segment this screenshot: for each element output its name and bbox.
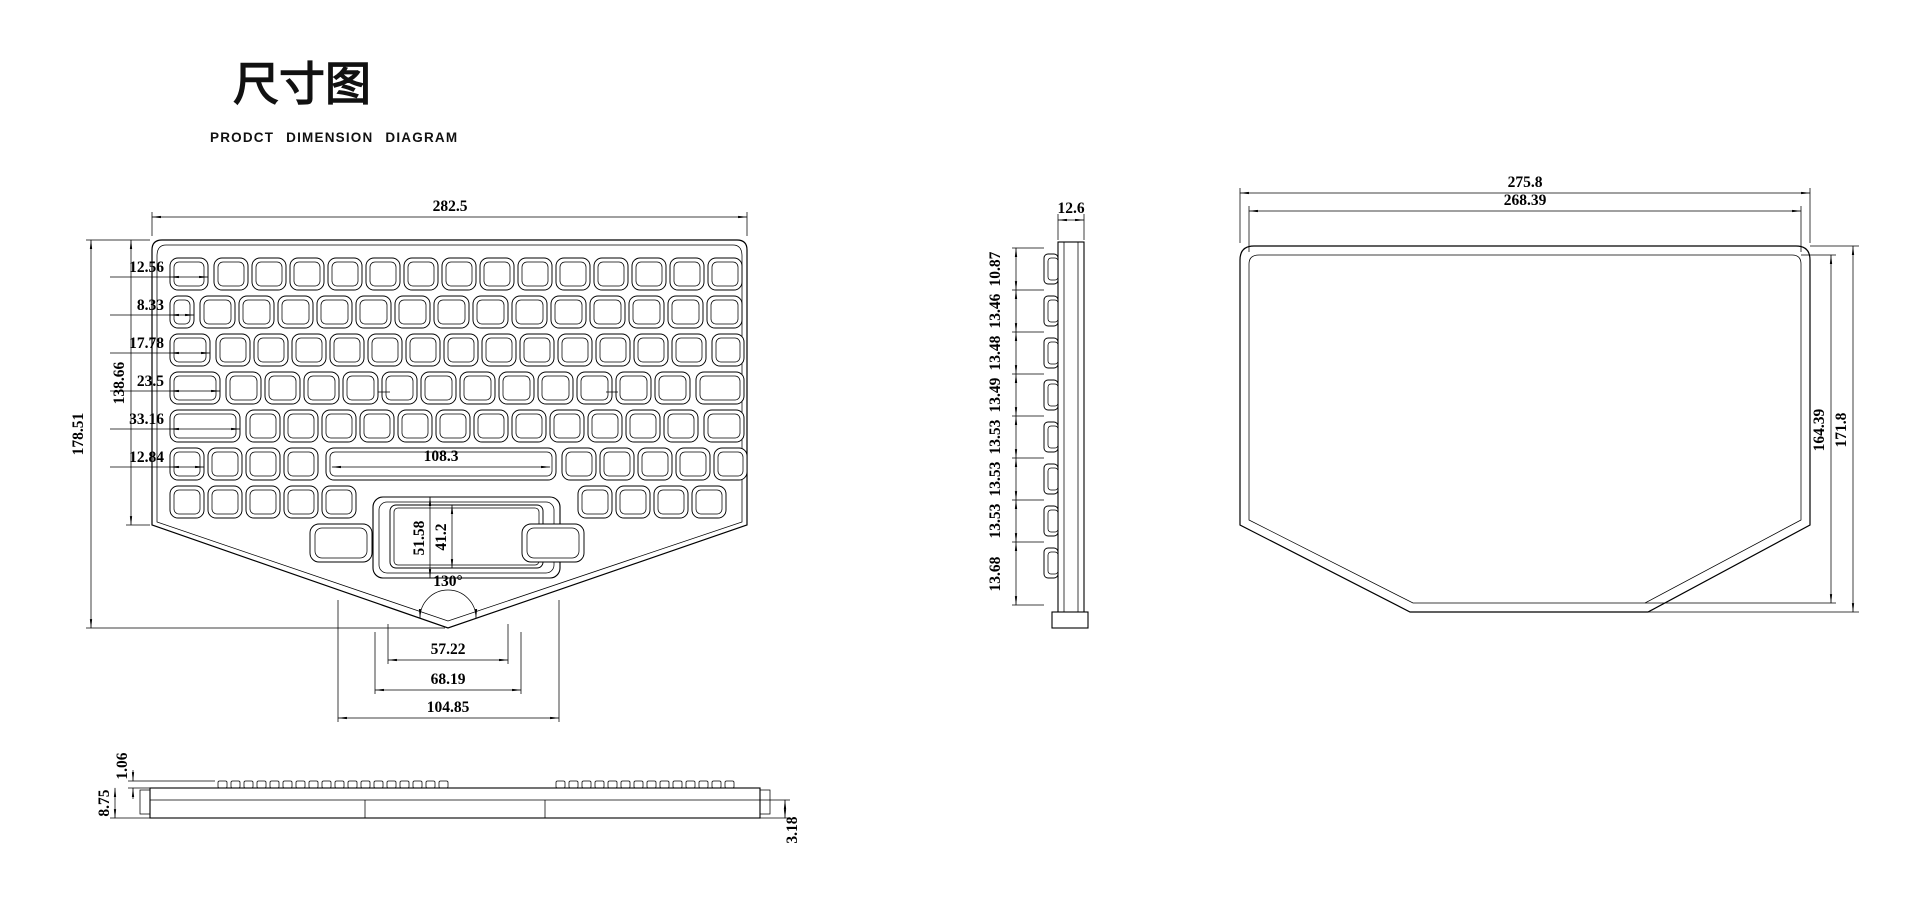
bottom-keycap-bump <box>374 781 383 788</box>
keycap <box>404 258 438 290</box>
keycap <box>550 410 584 442</box>
dim-label: 12.56 <box>129 259 164 276</box>
dim-label: 33.16 <box>129 411 164 428</box>
keycap <box>474 410 508 442</box>
keycap <box>226 372 261 404</box>
bottom-left-tab <box>140 790 150 814</box>
keycap <box>398 410 432 442</box>
dim-label: 13.53 <box>987 419 1004 454</box>
dim-back-inner-height: 164.39 <box>1645 255 1836 603</box>
keycap <box>322 486 356 518</box>
keycap <box>518 258 552 290</box>
dim-label: 41.2 <box>433 523 450 550</box>
bottom-keycap-bump <box>595 781 604 788</box>
key-grid <box>170 258 747 518</box>
keycap <box>551 296 586 328</box>
keycap <box>600 448 634 480</box>
keycap <box>208 448 242 480</box>
keycap <box>246 448 280 480</box>
keycap <box>368 334 402 366</box>
mouse-button-right <box>522 524 584 562</box>
keycap <box>676 448 710 480</box>
bottom-keycap-bump <box>660 781 669 788</box>
keycap <box>668 296 703 328</box>
keycap <box>395 296 430 328</box>
page-subtitle: PRODCT DIMENSION DIAGRAM <box>210 130 458 145</box>
keycap <box>330 334 364 366</box>
bottom-keycap-bump <box>439 781 448 788</box>
keycap <box>707 296 742 328</box>
dim-label: 268.39 <box>1504 192 1547 209</box>
keycap <box>360 410 394 442</box>
dim-base-thickness: 3.18 <box>760 800 801 844</box>
keycap <box>442 258 476 290</box>
keycap <box>265 372 300 404</box>
bottom-keycap-bump <box>569 781 578 788</box>
keycap <box>538 372 573 404</box>
keycap <box>406 334 440 366</box>
keycap <box>696 372 744 404</box>
dim-label: 51.58 <box>411 520 428 555</box>
keycap <box>343 372 378 404</box>
dim-side-thickness: 12.6 <box>1057 200 1084 240</box>
bottom-view: 1.06 8.75 3.18 <box>96 752 801 843</box>
bottom-keycap-bump <box>413 781 422 788</box>
front-view: 282.5 178.51 138.66 12.56 8.33 1 <box>70 198 747 722</box>
dim-label: 3.18 <box>784 816 801 843</box>
side-key-bump <box>1044 506 1058 536</box>
bottom-keycap-bump <box>296 781 305 788</box>
keycap <box>577 372 612 404</box>
mouse-button-left <box>310 524 372 562</box>
dim-label: 275.8 <box>1508 174 1543 191</box>
dim-label: 23.5 <box>137 373 164 390</box>
bottom-keycap-bump <box>426 781 435 788</box>
keycap <box>290 258 324 290</box>
keycap <box>208 486 242 518</box>
bottom-keycap-bump <box>257 781 266 788</box>
dim-overall-width: 282.5 <box>152 198 747 236</box>
keycap <box>356 296 391 328</box>
keycap <box>473 296 508 328</box>
keycap <box>520 334 554 366</box>
keycap <box>252 258 286 290</box>
keycap <box>284 410 318 442</box>
keycap <box>317 296 352 328</box>
keycap <box>278 296 313 328</box>
bottom-keycap-bump <box>673 781 682 788</box>
keycap <box>328 258 362 290</box>
back-outline-inner <box>1249 255 1801 603</box>
page-title: 尺寸图 <box>233 57 371 111</box>
dim-label: 12.6 <box>1057 200 1084 217</box>
bottom-keycap-bump <box>608 781 617 788</box>
keycap <box>616 486 650 518</box>
dim-label: 104.85 <box>427 699 470 716</box>
keycap <box>304 372 339 404</box>
keycap <box>596 334 630 366</box>
keycap <box>170 296 194 328</box>
keycap <box>562 448 596 480</box>
dim-label: 68.19 <box>431 671 466 688</box>
bottom-keycap-bump <box>647 781 656 788</box>
dim-label: 108.3 <box>424 448 459 465</box>
keycap <box>512 296 547 328</box>
keycap <box>632 258 666 290</box>
dim-label: 13.68 <box>987 556 1004 591</box>
dim-label: 1.06 <box>114 752 131 779</box>
keycap <box>629 296 664 328</box>
keycap <box>284 486 318 518</box>
keycap <box>170 410 240 442</box>
bottom-keycap-bump <box>231 781 240 788</box>
dim-side-row-pitches: 10.87 13.46 13.48 13.49 13.53 13.53 13.5… <box>987 248 1044 605</box>
side-key-bump <box>1044 296 1058 326</box>
back-view: 275.8 268.39 164.39 171.8 <box>1240 174 1859 612</box>
bottom-keycap-bump <box>621 781 630 788</box>
bottom-keycap-texture <box>218 781 734 788</box>
keycap <box>254 334 288 366</box>
dim-label: 130° <box>433 573 462 590</box>
keycap <box>654 486 688 518</box>
dim-notch-angle: 130° <box>420 573 476 618</box>
side-key-bump <box>1044 338 1058 368</box>
dim-label: 282.5 <box>433 198 468 215</box>
bottom-keycap-bump <box>686 781 695 788</box>
keycap <box>200 296 235 328</box>
bottom-keycap-bump <box>582 781 591 788</box>
keycap <box>708 258 742 290</box>
keycap <box>170 486 204 518</box>
bottom-right-tab <box>760 790 770 814</box>
bottom-keycap-bump <box>335 781 344 788</box>
dim-back-inner-width: 268.39 <box>1249 192 1801 252</box>
keycap <box>590 296 625 328</box>
side-key-bump <box>1044 422 1058 452</box>
bottom-keycap-bump <box>699 781 708 788</box>
dim-notch-width-inner: 57.22 <box>388 624 508 664</box>
dimension-diagram-page: 尺寸图 PRODCT DIMENSION DIAGRAM 282.5 <box>0 0 1920 899</box>
dim-label: 8.33 <box>137 297 164 314</box>
back-outline <box>1240 246 1810 612</box>
keycap <box>588 410 622 442</box>
bottom-keycap-bump <box>361 781 370 788</box>
keycap <box>284 448 318 480</box>
drawing-canvas: 尺寸图 PRODCT DIMENSION DIAGRAM 282.5 <box>0 0 1920 899</box>
keycap <box>460 372 495 404</box>
side-key-bump <box>1044 254 1058 284</box>
keycap <box>434 296 469 328</box>
dim-label: 12.84 <box>129 449 164 466</box>
keycap <box>558 334 592 366</box>
bottom-keycap-bump <box>387 781 396 788</box>
dim-total-thickness: 8.75 <box>96 788 150 818</box>
keycap <box>616 372 651 404</box>
dim-label: 8.75 <box>96 789 113 816</box>
bottom-keycap-bump <box>725 781 734 788</box>
keycap <box>482 334 516 366</box>
bottom-keycap-bump <box>283 781 292 788</box>
keycap <box>239 296 274 328</box>
dim-label: 13.53 <box>987 461 1004 496</box>
dim-label: 57.22 <box>431 641 466 658</box>
keycap <box>246 486 280 518</box>
keycap <box>670 258 704 290</box>
keycap <box>366 258 400 290</box>
keycap <box>216 334 250 366</box>
bottom-keycap-bump <box>348 781 357 788</box>
keycap <box>512 410 546 442</box>
keycap <box>444 334 478 366</box>
keycap <box>634 334 668 366</box>
dim-label: 138.66 <box>111 361 128 404</box>
keycap <box>626 410 660 442</box>
dim-notch-width-outer: 104.85 <box>338 600 559 722</box>
keycap <box>436 410 470 442</box>
keycap <box>382 372 417 404</box>
keycap <box>712 334 744 366</box>
bottom-keycap-bump <box>634 781 643 788</box>
keycap <box>292 334 326 366</box>
keycap <box>692 486 726 518</box>
side-key-bump <box>1044 548 1058 578</box>
side-key-bump <box>1044 380 1058 410</box>
keycap <box>170 448 204 480</box>
dim-label: 13.53 <box>987 503 1004 538</box>
side-key-bump <box>1044 464 1058 494</box>
side-view: 12.6 10.87 13.46 13.48 13.49 13.53 13.53… <box>987 200 1088 628</box>
keycap <box>578 486 612 518</box>
side-key-bumps <box>1044 254 1058 578</box>
keycap <box>480 258 514 290</box>
keycap <box>421 372 456 404</box>
dim-label: 13.48 <box>987 335 1004 370</box>
bottom-keycap-bump <box>218 781 227 788</box>
keycap <box>499 372 534 404</box>
keycap <box>556 258 590 290</box>
bottom-keycap-bump <box>400 781 409 788</box>
dim-label: 178.51 <box>70 413 87 456</box>
dim-label: 10.87 <box>987 251 1004 286</box>
keycap <box>638 448 672 480</box>
keycap <box>246 410 280 442</box>
keycap <box>664 410 698 442</box>
bottom-keycap-bump <box>712 781 721 788</box>
keycap <box>170 372 220 404</box>
bottom-keycap-bump <box>244 781 253 788</box>
side-profile-foot <box>1052 612 1088 628</box>
side-profile-body <box>1058 242 1084 625</box>
bottom-keycap-bump <box>322 781 331 788</box>
bottom-keycap-bump <box>556 781 565 788</box>
bottom-profile-body <box>150 788 760 818</box>
title-block: 尺寸图 PRODCT DIMENSION DIAGRAM <box>210 57 458 145</box>
keycap <box>655 372 690 404</box>
keycap <box>714 448 747 480</box>
dim-label: 13.49 <box>987 377 1004 412</box>
notch-arc <box>420 590 476 618</box>
dim-label: 171.8 <box>1833 412 1850 447</box>
keycap <box>594 258 628 290</box>
bottom-keycap-bump <box>309 781 318 788</box>
keycap <box>672 334 706 366</box>
dim-label: 13.46 <box>987 293 1004 328</box>
keycap <box>322 410 356 442</box>
dim-label: 164.39 <box>1811 408 1828 451</box>
dim-label: 17.78 <box>129 335 164 352</box>
keycap <box>214 258 248 290</box>
bottom-keycap-bump <box>270 781 279 788</box>
